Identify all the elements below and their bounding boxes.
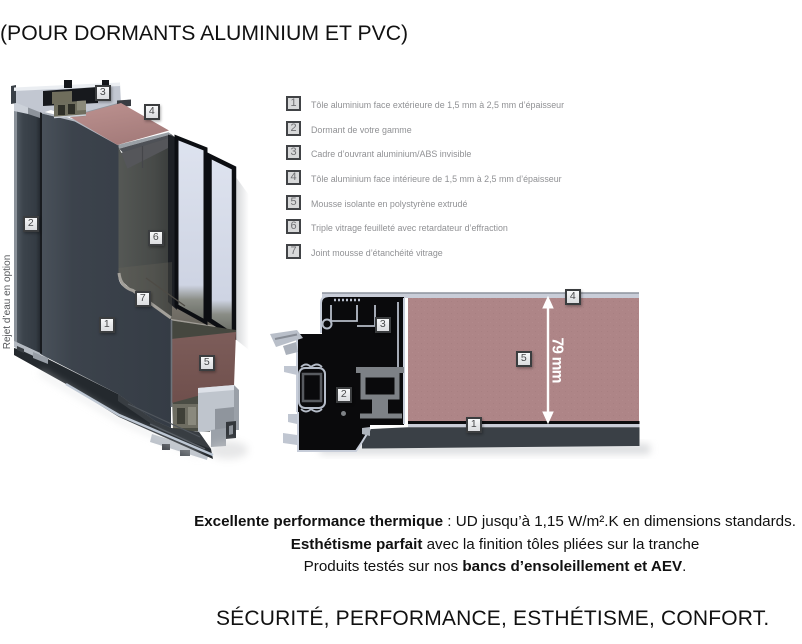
svg-text:Rejet d’eau en option: Rejet d’eau en option <box>2 255 13 350</box>
svg-text:79 mm: 79 mm <box>549 337 566 382</box>
